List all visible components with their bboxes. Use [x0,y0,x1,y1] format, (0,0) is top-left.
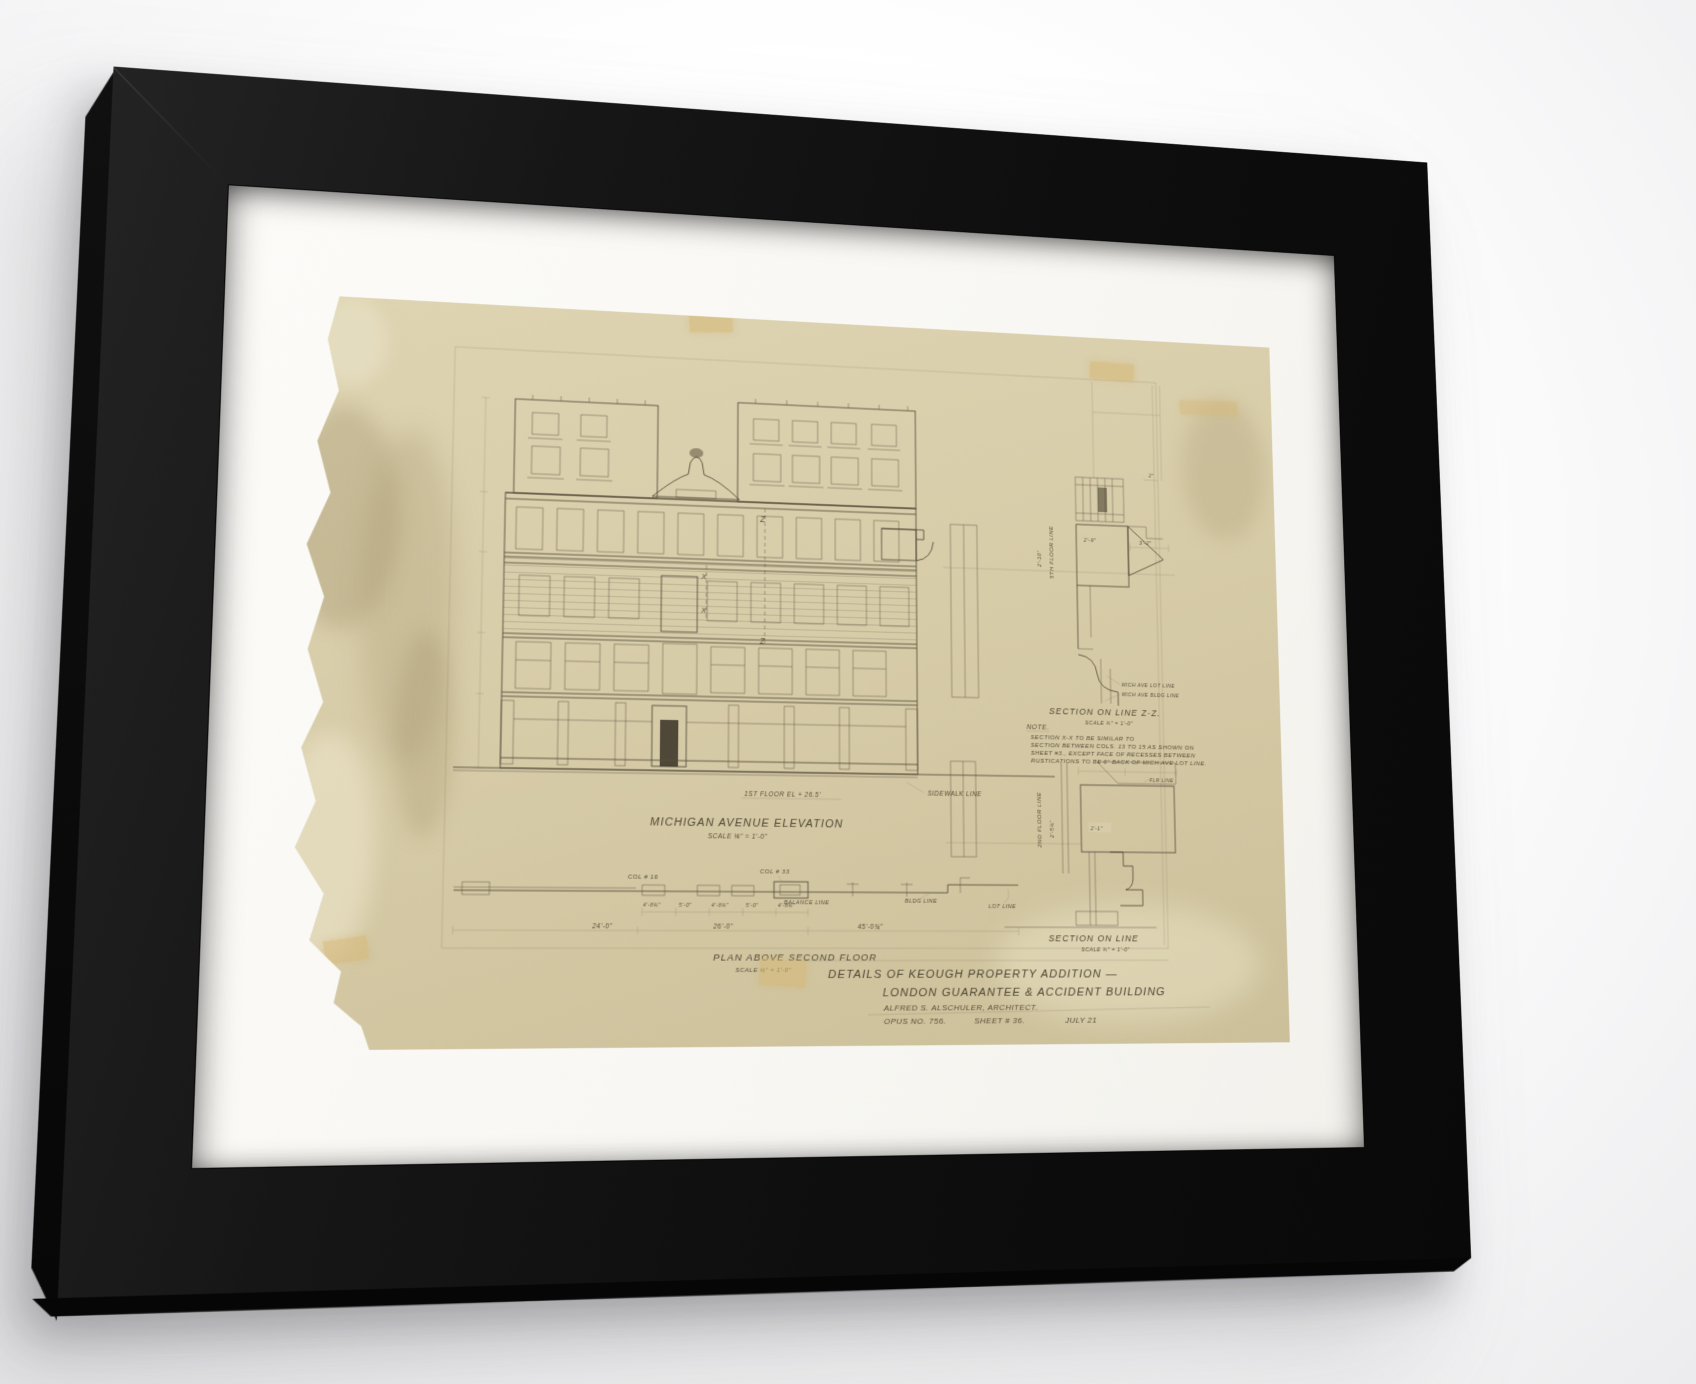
tape-strip [759,958,807,988]
sheet-number: SHEET # 36. [974,1016,1025,1025]
dim-2-5: 2'-5¾" [1050,820,1056,839]
lower-window-row [515,640,886,699]
section-zz-scale: SCALE ¾" = 1'-0" [1085,721,1134,728]
plan-dim: 4'-8¾" [778,903,795,909]
plan-dim: 4'-8¾" [643,903,661,909]
architectural-drawing: Z Z X X 1ST FLOOR EL + 26.5' SIDEWALK LI… [282,294,1290,1050]
elevation-title: MICHIGAN AVENUE ELEVATION [650,816,844,830]
michigan-avenue-elevation: Z Z X X 1ST FLOOR EL + 26.5' SIDEWALK LI… [451,385,1055,844]
col-16-label: COL # 16 [628,875,658,881]
mich-ave-bldg-line-label: MICH AVE BLDG LINE [1122,692,1180,699]
dim-2: 2" [1148,474,1154,480]
second-floor-line-label: 2ND FLOOR LINE [1037,791,1044,848]
frame-miter-joint [1427,72,1517,162]
dim-2-9: 2'-9" [1083,538,1097,544]
drawing-sheet: Z Z X X 1ST FLOOR EL + 26.5' SIDEWALK LI… [282,294,1290,1050]
dim-2-1: 2'-1" [1090,826,1104,832]
section-lower-title: SECTION ON LINE [1049,933,1139,943]
cartouche-ornament [652,446,739,499]
flr-line-label: FLR LINE [1150,778,1174,784]
note-heading: NOTE. [1027,724,1050,731]
section-zz-title: SECTION ON LINE Z-Z. [1049,706,1161,718]
cornice-return-detail [882,528,934,561]
architect-name: ALFRED S. ALSCHULER, ARCHITECT. [883,1003,1038,1013]
sidewalk-label: SIDEWALK LINE [928,791,982,799]
fifth-floor-line-label: 5TH FLOOR LINE [1049,525,1055,579]
first-floor-label: 1ST FLOOR EL + 26.5' [744,791,821,799]
elevation-scale: SCALE ⅛" = 1'-0" [708,833,768,841]
drawing-date: JULY 21 [1064,1016,1097,1025]
frame-miter-joint [113,67,228,185]
dim-3-2: 3'-2" [1139,541,1152,547]
frame-bottom-side-face [31,1258,1471,1317]
mich-ave-lot-line-label: MICH AVE LOT LINE [1122,683,1175,690]
dim-24: 24'-0" [591,923,613,930]
photo-backdrop: Z Z X X 1ST FLOOR EL + 26.5' SIDEWALK LI… [0,0,1696,1384]
dim-26: 26'-0" [712,923,733,930]
dim-2-10: 2'-10" [1037,550,1043,568]
lot-line-label: LOT LINE [989,904,1016,910]
mat-board: Z Z X X 1ST FLOOR EL + 26.5' SIDEWALK LI… [191,184,1365,1169]
section-marker-z: Z [759,514,766,524]
title-line-1: DETAILS OF KEOUGH PROPERTY ADDITION — [828,968,1118,981]
dim-45: 45'-0¾" [858,924,883,931]
window-head-profile [1075,477,1124,522]
section-line-zz: 5TH FLOOR LINE 2'-10" [942,465,1180,729]
tape-strip [689,313,733,332]
plan-above-second-floor: COL # 16 COL # 33 BALANCE LINE BLDG LINE… [452,867,1020,974]
note-block: NOTE. SECTION X-X TO BE SIMILAR TO SECTI… [1027,724,1207,767]
plan-dim: 5'-0" [679,903,692,909]
sheet-border [440,347,1210,1017]
bldg-line-label: BLDG LINE [905,899,937,905]
section-lower-scale: SCALE ¾" = 1'-0" [1081,947,1130,953]
opus-number: OPUS NO. 756. [884,1016,946,1026]
title-line-2: LONDON GUARANTEE & ACCIDENT BUILDING [883,986,1166,999]
section-marker-x: X [700,572,707,581]
frame-left-side-face [29,71,113,1322]
title-block: DETAILS OF KEOUGH PROPERTY ADDITION — LO… [828,968,1166,1026]
section-marker-x: X [700,606,707,615]
section-marker-z: Z [759,636,766,646]
picture-frame: Z Z X X 1ST FLOOR EL + 26.5' SIDEWALK LI… [58,67,1471,1299]
plan-dim: 5'-0" [746,903,759,909]
section-lower: FLR LINE 2ND FLOOR LINE 2'-5¾" 2'-1" [945,759,1181,953]
frieze-louvers [516,507,899,562]
col-33-label: COL # 33 [760,869,790,875]
storefront-level [500,700,917,770]
plan-dim: 4'-8¾" [711,903,728,909]
tape-strip [1180,400,1238,416]
